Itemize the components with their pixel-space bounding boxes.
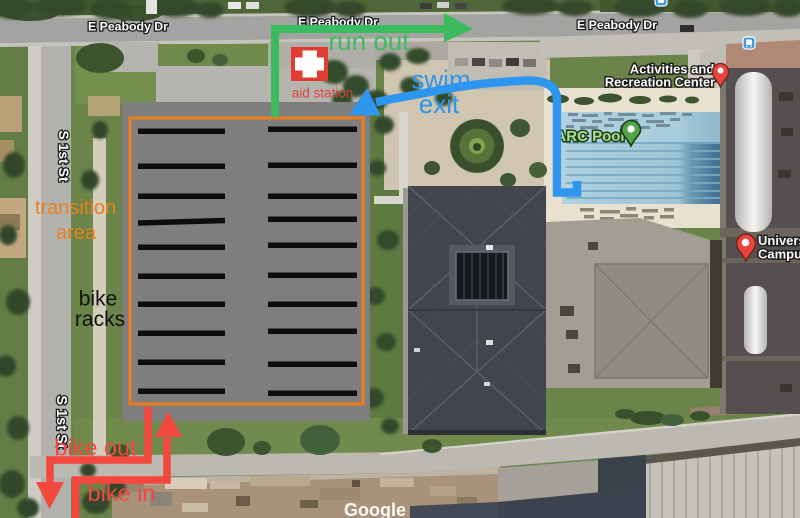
svg-text:bike out: bike out [54,435,137,461]
svg-text:Recreation Center: Recreation Center [605,75,715,90]
svg-text:exit: exit [419,89,460,119]
svg-text:run out: run out [329,26,411,56]
svg-text:Google: Google [344,500,406,518]
svg-text:bike in: bike in [88,480,156,506]
svg-text:S 1st St: S 1st St [56,130,72,182]
svg-text:racks: racks [75,308,125,331]
svg-text:E Peabody Dr: E Peabody Dr [88,20,168,34]
svg-text:area: area [56,222,97,244]
svg-text:aid station: aid station [292,86,354,101]
svg-text:Campus: Campus [758,247,800,262]
svg-text:transition: transition [35,197,116,219]
svg-text:ARC Pool: ARC Pool [555,128,624,145]
svg-text:E Peabody Dr: E Peabody Dr [577,18,657,32]
